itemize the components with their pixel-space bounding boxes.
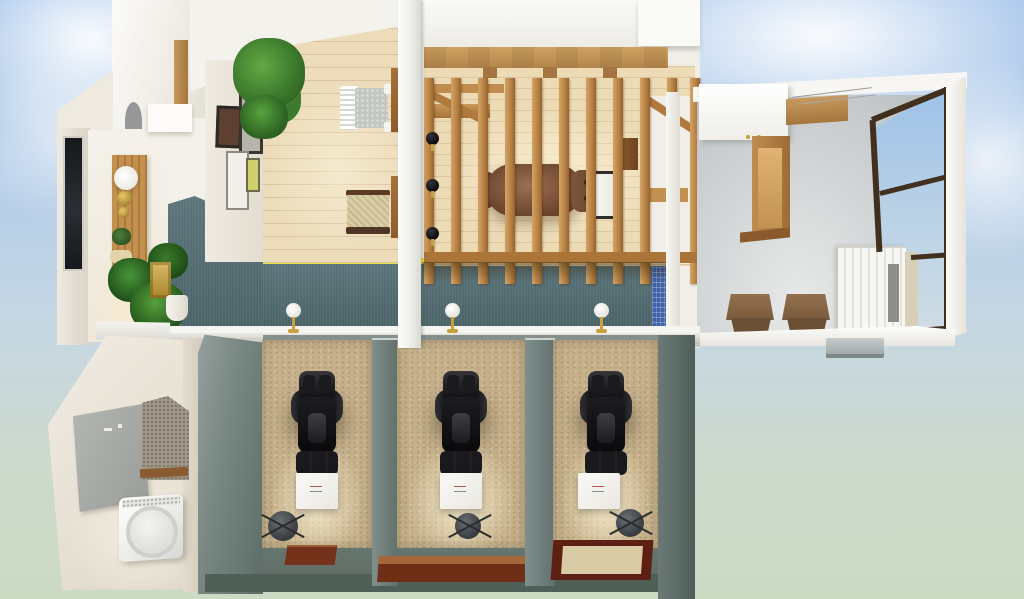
booth-1 bbox=[262, 335, 372, 590]
cabinet-side-panel bbox=[905, 252, 918, 336]
brown-chair-back bbox=[782, 294, 830, 320]
wood-counter-face bbox=[758, 148, 782, 228]
chair-footrest bbox=[440, 451, 482, 475]
white-planter bbox=[166, 295, 188, 321]
booth-partition bbox=[525, 338, 555, 586]
chair-footrest bbox=[585, 451, 627, 475]
door-frame-wood bbox=[174, 40, 188, 112]
booth-3-stool bbox=[616, 509, 644, 537]
brass-table-lamp bbox=[594, 303, 610, 341]
booth-2-stool bbox=[455, 513, 481, 539]
chair-seat bbox=[597, 413, 615, 443]
backroom-outer-wall bbox=[946, 76, 966, 338]
beam-joist bbox=[543, 67, 557, 78]
booth-2-threshold bbox=[377, 556, 529, 582]
brown-chair-back bbox=[726, 294, 774, 320]
wall-sconce bbox=[426, 179, 439, 192]
framed-picture bbox=[246, 158, 260, 192]
wicker-chair bbox=[340, 84, 390, 132]
booth-3 bbox=[553, 335, 658, 590]
beam-joist bbox=[603, 67, 617, 78]
lamp-shade bbox=[445, 303, 460, 318]
booth-1-stool bbox=[268, 511, 298, 541]
booth-2-massage-chair bbox=[435, 371, 487, 475]
beam-joist bbox=[483, 67, 497, 78]
cabinet-knob bbox=[746, 135, 750, 139]
lamp-base bbox=[596, 329, 607, 333]
wicker-chair-cushion bbox=[355, 88, 388, 128]
treatment-parapet bbox=[638, 0, 700, 46]
booth-1-massage-chair bbox=[291, 371, 343, 475]
wall-sconce bbox=[426, 227, 439, 240]
chair-headrest bbox=[299, 371, 335, 398]
ceiling-beam bbox=[424, 47, 668, 68]
booth-3-massage-chair bbox=[580, 371, 632, 475]
booth-1-side-table bbox=[296, 473, 338, 509]
armchair-seat bbox=[347, 195, 389, 228]
lamp-base bbox=[288, 329, 299, 333]
console-plant bbox=[112, 228, 131, 245]
brass-side-table bbox=[150, 262, 171, 298]
lamp-shade bbox=[594, 303, 609, 318]
large-potted-plant-lower bbox=[240, 95, 288, 139]
brass-table-lamp bbox=[286, 303, 302, 341]
chair-headrest bbox=[443, 371, 479, 398]
gold-sphere bbox=[118, 207, 129, 218]
booth-west-wall bbox=[198, 332, 263, 594]
floorplan-render bbox=[0, 0, 1024, 599]
globe-lamp bbox=[114, 166, 138, 190]
washing-machine-door bbox=[126, 506, 178, 558]
white-corner-pillar bbox=[666, 92, 680, 332]
lamp-shade bbox=[286, 303, 301, 318]
booth-east-wall bbox=[658, 335, 695, 599]
chair-headrest bbox=[588, 371, 624, 398]
board-mark bbox=[104, 428, 112, 431]
booth-2 bbox=[397, 335, 525, 590]
entry-door-window bbox=[63, 136, 84, 271]
booth-2-side-table bbox=[440, 473, 482, 509]
slat-floor-shadow bbox=[422, 262, 668, 282]
lamp-base bbox=[447, 329, 458, 333]
chair-seat bbox=[452, 413, 470, 443]
overhead-cabinet bbox=[699, 84, 788, 140]
cabinet-slot bbox=[888, 264, 899, 322]
ac-unit bbox=[826, 338, 884, 358]
booth-3-mat-inner bbox=[561, 546, 643, 574]
wall-board bbox=[73, 404, 149, 512]
booth-partition bbox=[372, 338, 398, 586]
brass-table-lamp bbox=[445, 303, 461, 341]
chair-seat bbox=[308, 413, 326, 443]
rattan-armchair bbox=[346, 190, 390, 236]
gold-sphere bbox=[117, 191, 132, 206]
board-mark bbox=[118, 424, 122, 428]
booth-3-side-table bbox=[578, 473, 620, 509]
armchair-front bbox=[346, 227, 390, 234]
wall-sconce bbox=[426, 132, 439, 145]
entry-shelf-box bbox=[148, 104, 192, 132]
white-pillar bbox=[398, 0, 421, 348]
chair-footrest bbox=[296, 451, 338, 475]
booth-1-wood-mat bbox=[285, 545, 338, 565]
